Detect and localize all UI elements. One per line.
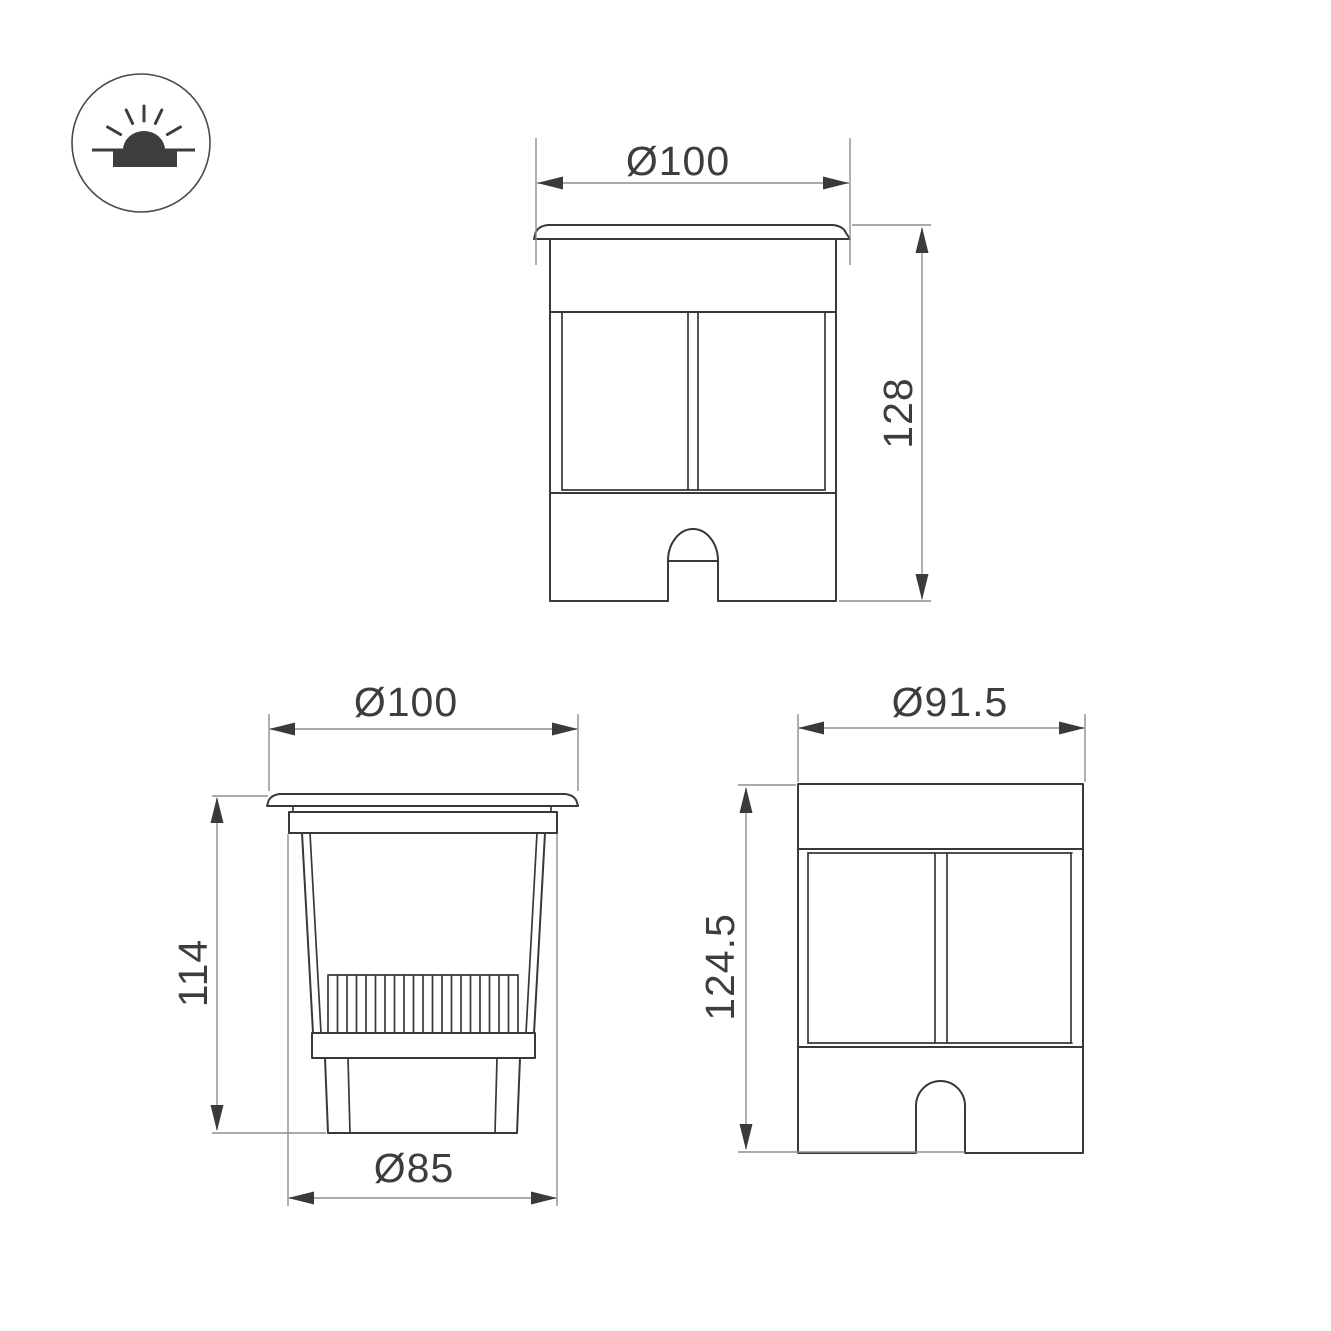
front-window-mullions [562,312,825,490]
section-width-dimension-label: Ø100 [354,679,458,725]
technical-drawing-canvas: Ø100 128 [0,0,1331,1331]
section-ring-band [289,812,557,833]
icon-housing-rect [113,150,177,167]
section-heatsink-fins [328,975,518,1033]
housing-window-mullions [808,853,1071,1043]
section-mounting-plate [312,1033,535,1058]
section-view-drawing [267,794,578,1133]
housing-height-dimension-label: 124.5 [697,913,743,1021]
front-view-dimensions: Ø100 128 [536,138,931,601]
section-base-dimension-label: Ø85 [374,1145,455,1191]
icon-dome [123,131,165,150]
recessed-ground-light-icon [72,74,210,212]
front-height-dimension-label: 128 [875,377,921,448]
section-height-dimension-label: 114 [170,939,216,1007]
housing-width-dimension-label: Ø91.5 [892,679,1009,725]
front-view-drawing [534,225,850,601]
front-flange [534,225,850,239]
housing-view-drawing [798,784,1083,1153]
housing-view-dimensions: Ø91.5 124.5 [697,679,1085,1152]
icon-light-rays [108,106,181,135]
front-width-dimension-label: Ø100 [626,138,730,184]
housing-body [798,784,1083,1153]
section-flange [267,794,578,806]
front-body [550,239,836,601]
section-lower-base [325,1058,520,1133]
